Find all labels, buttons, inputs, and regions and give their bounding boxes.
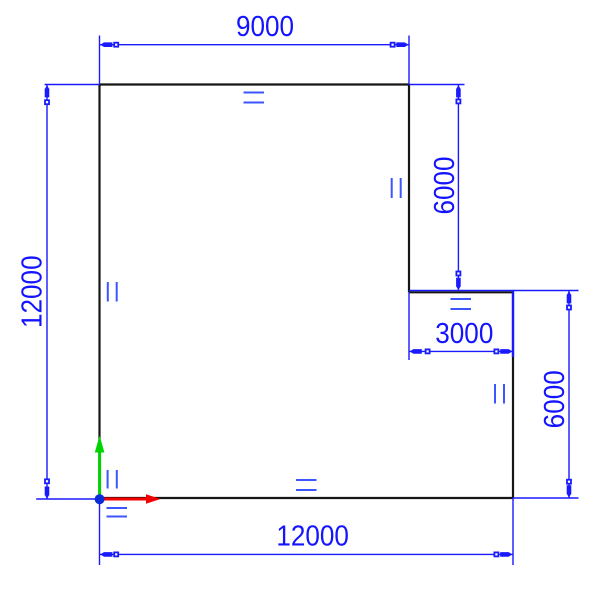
svg-text:12000: 12000 xyxy=(276,519,349,552)
svg-text:12000: 12000 xyxy=(15,255,48,328)
svg-text:3000: 3000 xyxy=(435,317,493,350)
svg-text:6000: 6000 xyxy=(538,370,571,428)
svg-text:9000: 9000 xyxy=(236,10,294,43)
svg-text:6000: 6000 xyxy=(428,156,461,214)
